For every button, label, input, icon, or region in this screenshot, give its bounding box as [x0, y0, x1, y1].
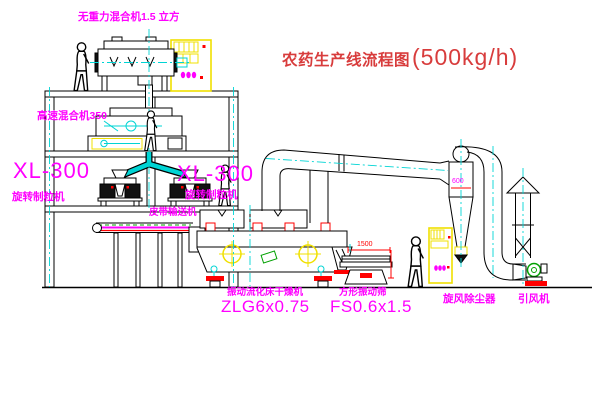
belt-conveyor: [93, 223, 206, 287]
drawing-canvas: 农药生产线流程图 (500kg/h) 无重力混合机1.5 立方 高速混合机350…: [0, 0, 600, 403]
label-xl300-mid: XL-300: [177, 163, 254, 185]
label-granulator-mid: 旋转制粒机: [185, 190, 238, 201]
induced-draft-fan: [513, 264, 547, 287]
label-xl300-left: XL-300: [13, 160, 90, 182]
vibrating-screen: [340, 244, 394, 284]
label-dryer-model: ZLG6x0.75: [221, 298, 310, 315]
title-text: 农药生产线流程图: [282, 48, 410, 70]
dimension-cyclone-600: 600: [452, 178, 464, 185]
person-figure: [74, 43, 89, 91]
dimension-screen-1500: 1500: [357, 241, 373, 248]
label-high-speed-mixer: 高速混合机350: [37, 111, 107, 122]
label-granulator-left: 旋转制粒机: [12, 192, 65, 203]
fluid-bed-dryer: [197, 210, 352, 287]
title-capacity: (500kg/h): [412, 44, 518, 71]
label-screen-model: FS0.6x1.5: [330, 298, 412, 315]
control-cabinet-bottom: [429, 228, 452, 283]
person-figure: [408, 237, 423, 286]
label-gravity-mixer: 无重力混合机1.5 立方: [78, 12, 180, 23]
rotary-granulator-left: [98, 170, 142, 206]
label-fan: 引风机: [518, 294, 550, 305]
drawing-title: 农药生产线流程图 (500kg/h): [282, 44, 518, 71]
label-cyclone: 旋风除尘器: [443, 294, 496, 305]
label-belt-conveyor: 皮带输送机: [149, 208, 197, 218]
